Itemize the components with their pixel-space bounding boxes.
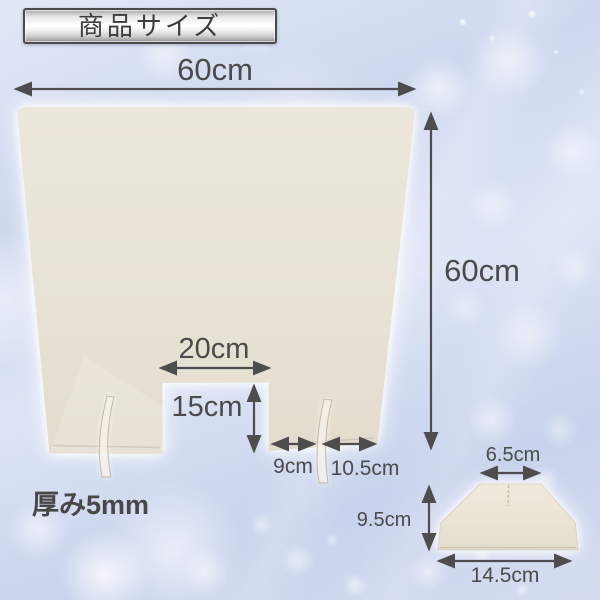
slot-to-edge-label: 10.5cm xyxy=(319,458,411,480)
foot-piece-group xyxy=(438,484,578,550)
foot-top-width-label: 6.5cm xyxy=(473,445,553,466)
panel-thickness-label: 厚み5mm xyxy=(32,491,149,519)
product-size-diagram: 商品サイズ xyxy=(0,0,600,600)
panel-height-label: 60cm xyxy=(437,255,527,288)
notch-width-label: 20cm xyxy=(158,334,270,364)
notch-depth-label: 15cm xyxy=(164,392,250,422)
notch-to-slot-label: 9cm xyxy=(263,456,323,478)
foot-bottom-width-label: 14.5cm xyxy=(455,565,555,587)
foot-height-label: 9.5cm xyxy=(346,510,422,531)
foot-piece-shape xyxy=(438,484,578,550)
panel-width-label: 60cm xyxy=(145,54,285,87)
